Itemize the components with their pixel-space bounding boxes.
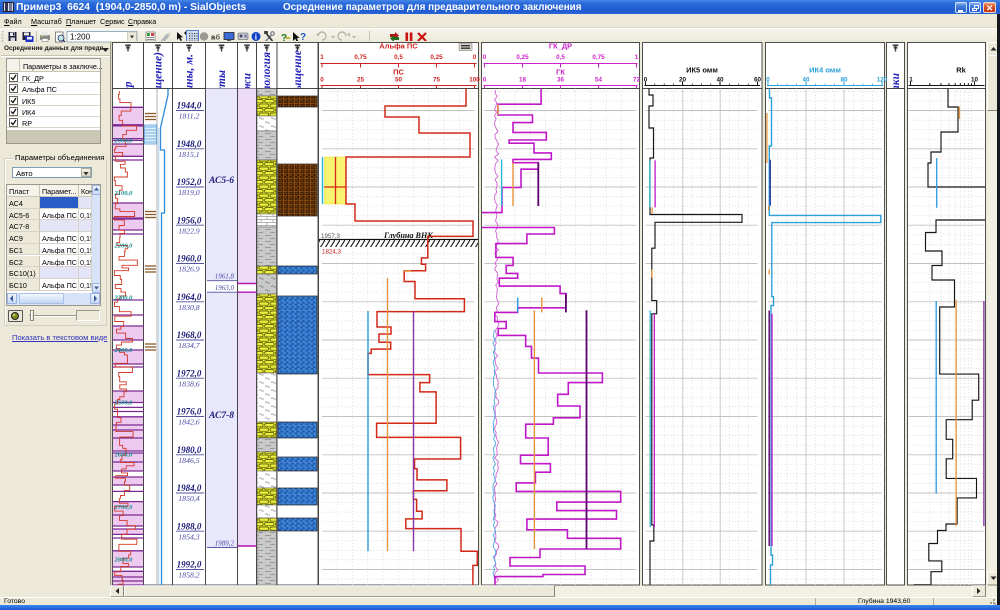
svg-text:0,5: 0,5 — [394, 54, 403, 61]
svg-text:2400,0: 2400,0 — [114, 347, 134, 354]
svg-text:1:200: 1:200 — [70, 33, 91, 42]
svg-text:1992,0: 1992,0 — [177, 560, 202, 570]
svg-text:2700,0: 2700,0 — [114, 504, 134, 511]
svg-text:1: 1 — [320, 54, 324, 61]
svg-text:1989,2: 1989,2 — [215, 540, 235, 548]
svg-text:ГК_ДР: ГК_ДР — [549, 42, 572, 51]
svg-text:2000,0: 2000,0 — [114, 138, 134, 145]
svg-text:54: 54 — [595, 77, 603, 84]
svg-text:АС7-8: АС7-8 — [208, 411, 234, 421]
svg-text:1944,0: 1944,0 — [177, 101, 202, 111]
svg-text:75: 75 — [433, 77, 441, 84]
svg-text:1972,0: 1972,0 — [177, 368, 202, 378]
svg-text:0,25: 0,25 — [430, 54, 443, 61]
svg-text:ПС: ПС — [393, 68, 404, 77]
svg-text:1952,0: 1952,0 — [177, 177, 202, 187]
svg-text:1846,5: 1846,5 — [178, 456, 200, 465]
svg-text:18: 18 — [519, 77, 527, 84]
svg-text:1957,3: 1957,3 — [321, 233, 340, 240]
svg-text:25: 25 — [357, 77, 365, 84]
svg-text:ИК4 омм: ИК4 омм — [809, 66, 841, 75]
svg-text:1815,1: 1815,1 — [178, 150, 200, 159]
svg-text:36: 36 — [557, 77, 565, 84]
svg-text:2500,0: 2500,0 — [114, 399, 134, 406]
svg-text:1968,0: 1968,0 — [177, 330, 202, 340]
svg-text:1961,8: 1961,8 — [215, 273, 235, 281]
svg-text:1976,0: 1976,0 — [177, 407, 202, 417]
svg-text:0,5: 0,5 — [556, 54, 565, 61]
svg-text:72: 72 — [633, 77, 641, 84]
svg-text:1984,0: 1984,0 — [177, 483, 202, 493]
svg-text:1858,2: 1858,2 — [178, 571, 200, 580]
svg-text:Альфа ПС: Альфа ПС — [379, 42, 418, 51]
svg-text:2600,0: 2600,0 — [114, 452, 134, 459]
svg-text:1822,9: 1822,9 — [178, 226, 200, 235]
svg-text:100: 100 — [469, 77, 480, 84]
svg-text:1811,2: 1811,2 — [179, 112, 200, 121]
svg-text:0,25: 0,25 — [516, 54, 529, 61]
svg-text:1956,0: 1956,0 — [177, 215, 202, 225]
svg-text:1830,8: 1830,8 — [178, 303, 200, 312]
svg-text:1980,0: 1980,0 — [177, 445, 202, 455]
svg-text:1948,0: 1948,0 — [177, 139, 202, 149]
svg-text:2300,0: 2300,0 — [114, 295, 134, 302]
svg-text:1824,3: 1824,3 — [322, 249, 341, 256]
svg-text:1: 1 — [635, 54, 639, 61]
svg-text:0,75: 0,75 — [354, 54, 367, 61]
svg-text:1834,7: 1834,7 — [178, 341, 201, 350]
svg-text:0,75: 0,75 — [592, 54, 605, 61]
svg-text:2200,0: 2200,0 — [114, 242, 134, 249]
svg-text:ГК: ГК — [556, 68, 565, 77]
svg-text:0: 0 — [483, 77, 487, 84]
svg-text:1826,9: 1826,9 — [178, 265, 200, 274]
svg-text:1842,6: 1842,6 — [178, 418, 200, 427]
svg-text:1964,0: 1964,0 — [177, 292, 202, 302]
svg-text:АС5-6: АС5-6 — [208, 176, 234, 186]
svg-text:Глубина ВНК: Глубина ВНК — [383, 231, 433, 240]
svg-text:0: 0 — [320, 77, 324, 84]
svg-text:0: 0 — [473, 54, 477, 61]
svg-text:1854,3: 1854,3 — [178, 533, 200, 542]
svg-text:2800,0: 2800,0 — [114, 556, 134, 563]
svg-text:1: 1 — [909, 77, 913, 84]
svg-text:1960,0: 1960,0 — [177, 254, 202, 264]
svg-text:50: 50 — [395, 77, 403, 84]
svg-text:1819,0: 1819,0 — [178, 188, 200, 197]
svg-text:1850,4: 1850,4 — [178, 494, 200, 503]
svg-text:ИК5 омм: ИК5 омм — [686, 66, 718, 75]
svg-text:1838,6: 1838,6 — [178, 379, 200, 388]
svg-text:0: 0 — [483, 54, 487, 61]
svg-text:Rk: Rk — [956, 66, 966, 75]
svg-text:1963,0: 1963,0 — [215, 284, 235, 292]
svg-text:2100,0: 2100,0 — [114, 190, 134, 197]
svg-text:1988,0: 1988,0 — [177, 522, 202, 532]
